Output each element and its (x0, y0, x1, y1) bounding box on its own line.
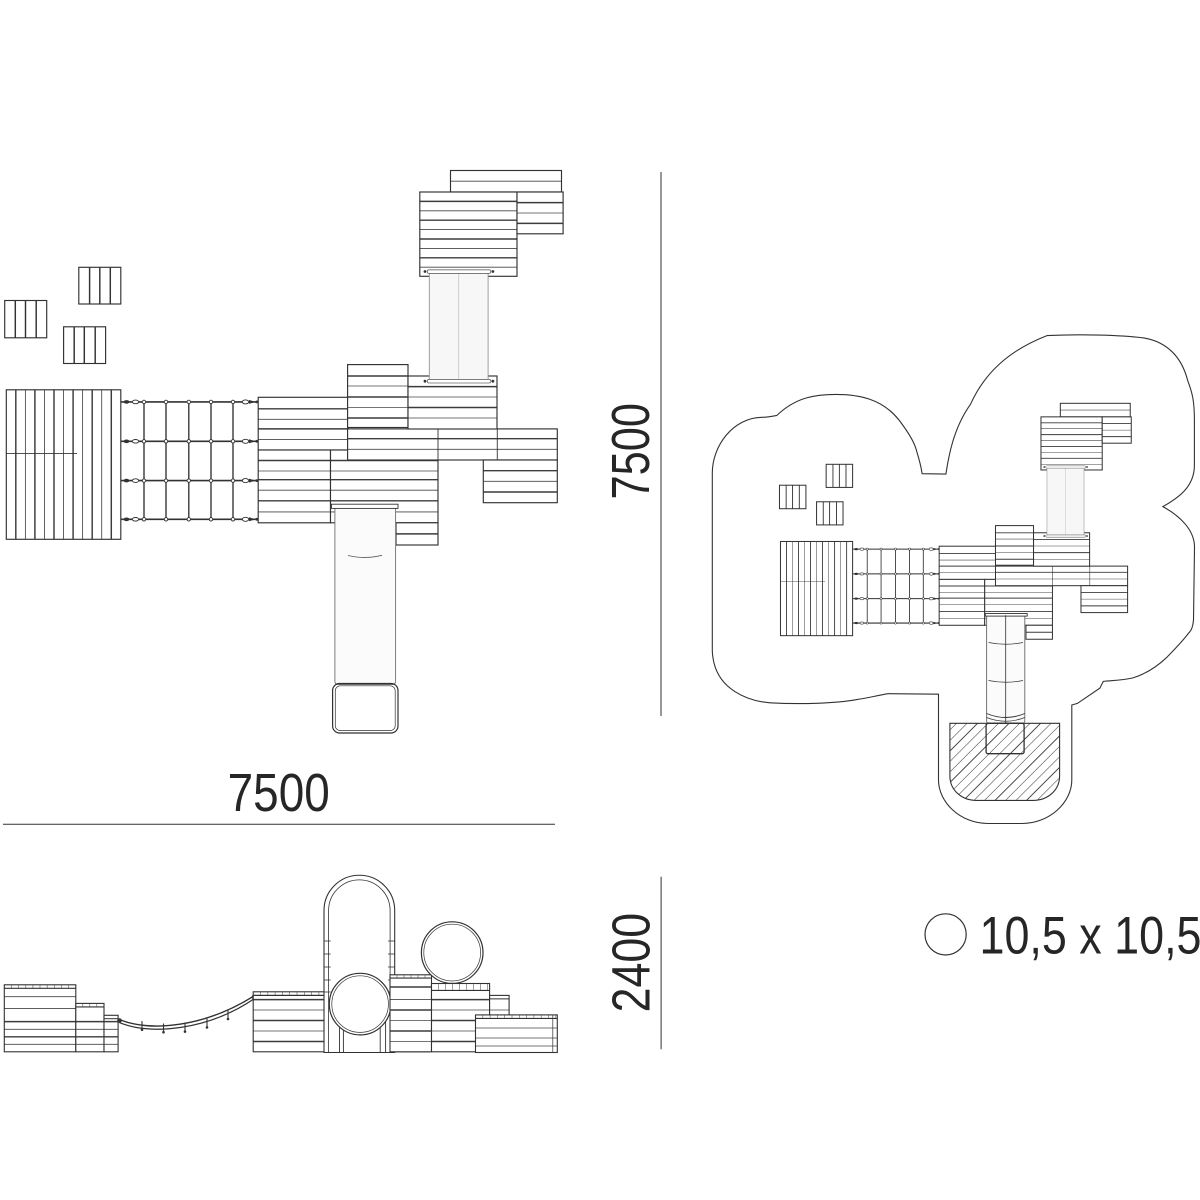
svg-text:2400: 2400 (602, 913, 662, 1012)
svg-text:10,5 x 10,5: 10,5 x 10,5 (980, 906, 1200, 965)
svg-text:7500: 7500 (228, 763, 330, 823)
svg-text:7500: 7500 (602, 403, 661, 499)
